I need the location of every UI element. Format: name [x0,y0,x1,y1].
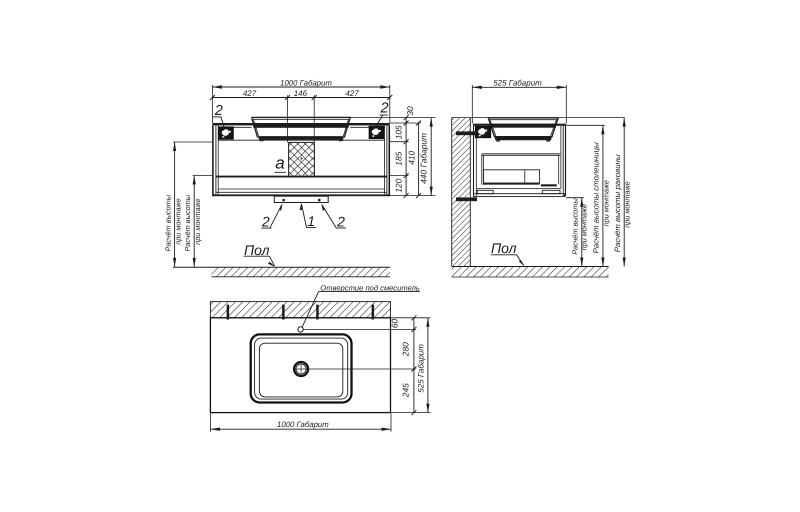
svg-text:при монтаже: при монтаже [193,198,202,244]
svg-text:при монтаже: при монтаже [623,181,632,227]
svg-text:1000 Габарит: 1000 Габарит [280,79,332,88]
svg-text:Расчёт высоты: Расчёт высоты [570,198,579,255]
svg-text:245: 245 [400,383,410,398]
svg-text:2: 2 [336,213,345,229]
svg-text:525 Габарит: 525 Габарит [493,79,542,88]
svg-text:Расчёт высоты: Расчёт высоты [163,194,172,251]
svg-text:120: 120 [394,178,404,192]
svg-text:2: 2 [380,101,389,117]
svg-text:427: 427 [345,89,359,98]
svg-text:при монтаже: при монтаже [601,180,610,226]
svg-text:410: 410 [406,150,416,164]
svg-text:1000 Габарит: 1000 Габарит [277,420,329,429]
svg-text:a: a [275,154,284,173]
svg-text:Расчёт высоты: Расчёт высоты [183,194,192,251]
svg-text:146: 146 [294,89,308,98]
svg-text:60: 60 [389,319,399,329]
svg-text:440 Габарит: 440 Габарит [418,133,428,184]
svg-text:280: 280 [400,342,410,357]
svg-text:105: 105 [394,125,404,139]
svg-text:Расчёт высоты столешницы: Расчёт высоты столешницы [592,142,601,253]
svg-text:Пол: Пол [244,242,270,258]
svg-text:2: 2 [214,103,223,119]
svg-text:185: 185 [394,151,404,165]
svg-text:при монтаже: при монтаже [173,198,182,244]
svg-text:при монтаже: при монтаже [580,204,589,250]
svg-text:Отверстие под смеситель: Отверстие под смеситель [320,283,420,292]
svg-text:427: 427 [243,89,257,98]
svg-text:30: 30 [405,106,415,116]
svg-text:525 Габарит: 525 Габарит [416,344,425,393]
svg-text:Расчёт высоты раковины: Расчёт высоты раковины [613,154,622,252]
svg-text:Пол: Пол [491,240,517,256]
svg-text:2: 2 [261,213,270,229]
svg-text:1: 1 [307,213,315,229]
